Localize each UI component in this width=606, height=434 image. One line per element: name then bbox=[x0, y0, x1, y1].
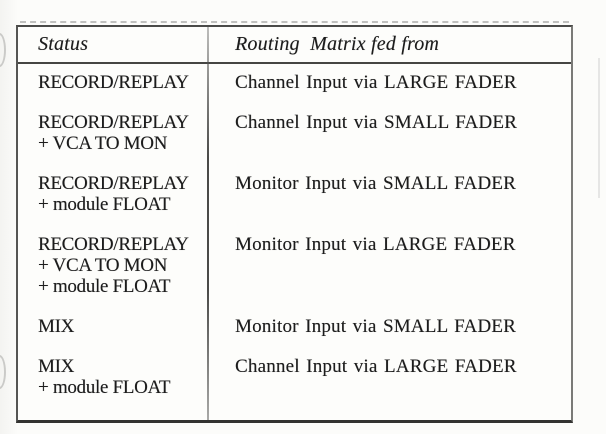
table-row: RECORD/REPLAY Channel Input via LARGE FA… bbox=[18, 72, 571, 93]
routing-status-table: Status Routing Matrix fed from RECORD/RE… bbox=[16, 25, 573, 423]
status-column-header: Status bbox=[18, 33, 207, 56]
table-header-row: Status Routing Matrix fed from bbox=[18, 27, 571, 64]
table-row: MIX + module FLOAT Channel Input via LAR… bbox=[18, 356, 571, 398]
routing-column-header: Routing Matrix fed from bbox=[207, 33, 571, 56]
routing-cell: Monitor Input via SMALL FADER bbox=[207, 173, 571, 215]
status-cell: MIX bbox=[18, 316, 207, 337]
table-row: RECORD/REPLAY + VCA TO MON Channel Input… bbox=[18, 112, 571, 154]
table-row: RECORD/REPLAY + module FLOAT Monitor Inp… bbox=[18, 173, 571, 215]
scanned-page: Status Routing Matrix fed from RECORD/RE… bbox=[0, 0, 606, 434]
table-body: RECORD/REPLAY Channel Input via LARGE FA… bbox=[18, 64, 571, 398]
table-row: RECORD/REPLAY + VCA TO MON + module FLOA… bbox=[18, 234, 571, 297]
status-cell: RECORD/REPLAY + module FLOAT bbox=[18, 173, 207, 215]
status-cell: MIX + module FLOAT bbox=[18, 356, 207, 398]
routing-cell: Monitor Input via SMALL FADER bbox=[207, 316, 571, 337]
routing-cell: Channel Input via LARGE FADER bbox=[207, 356, 571, 398]
status-cell: RECORD/REPLAY bbox=[18, 72, 207, 93]
binder-ring-artifact bbox=[0, 33, 6, 67]
status-cell: RECORD/REPLAY + VCA TO MON bbox=[18, 112, 207, 154]
routing-cell: Channel Input via SMALL FADER bbox=[207, 112, 571, 154]
routing-cell: Channel Input via LARGE FADER bbox=[207, 72, 571, 93]
page-edge-artifact bbox=[598, 58, 600, 198]
status-cell: RECORD/REPLAY + VCA TO MON + module FLOA… bbox=[18, 234, 207, 297]
table-row: MIX Monitor Input via SMALL FADER bbox=[18, 316, 571, 337]
column-divider-line bbox=[207, 27, 209, 420]
routing-cell: Monitor Input via LARGE FADER bbox=[207, 234, 571, 297]
binder-ring-artifact bbox=[0, 355, 6, 389]
